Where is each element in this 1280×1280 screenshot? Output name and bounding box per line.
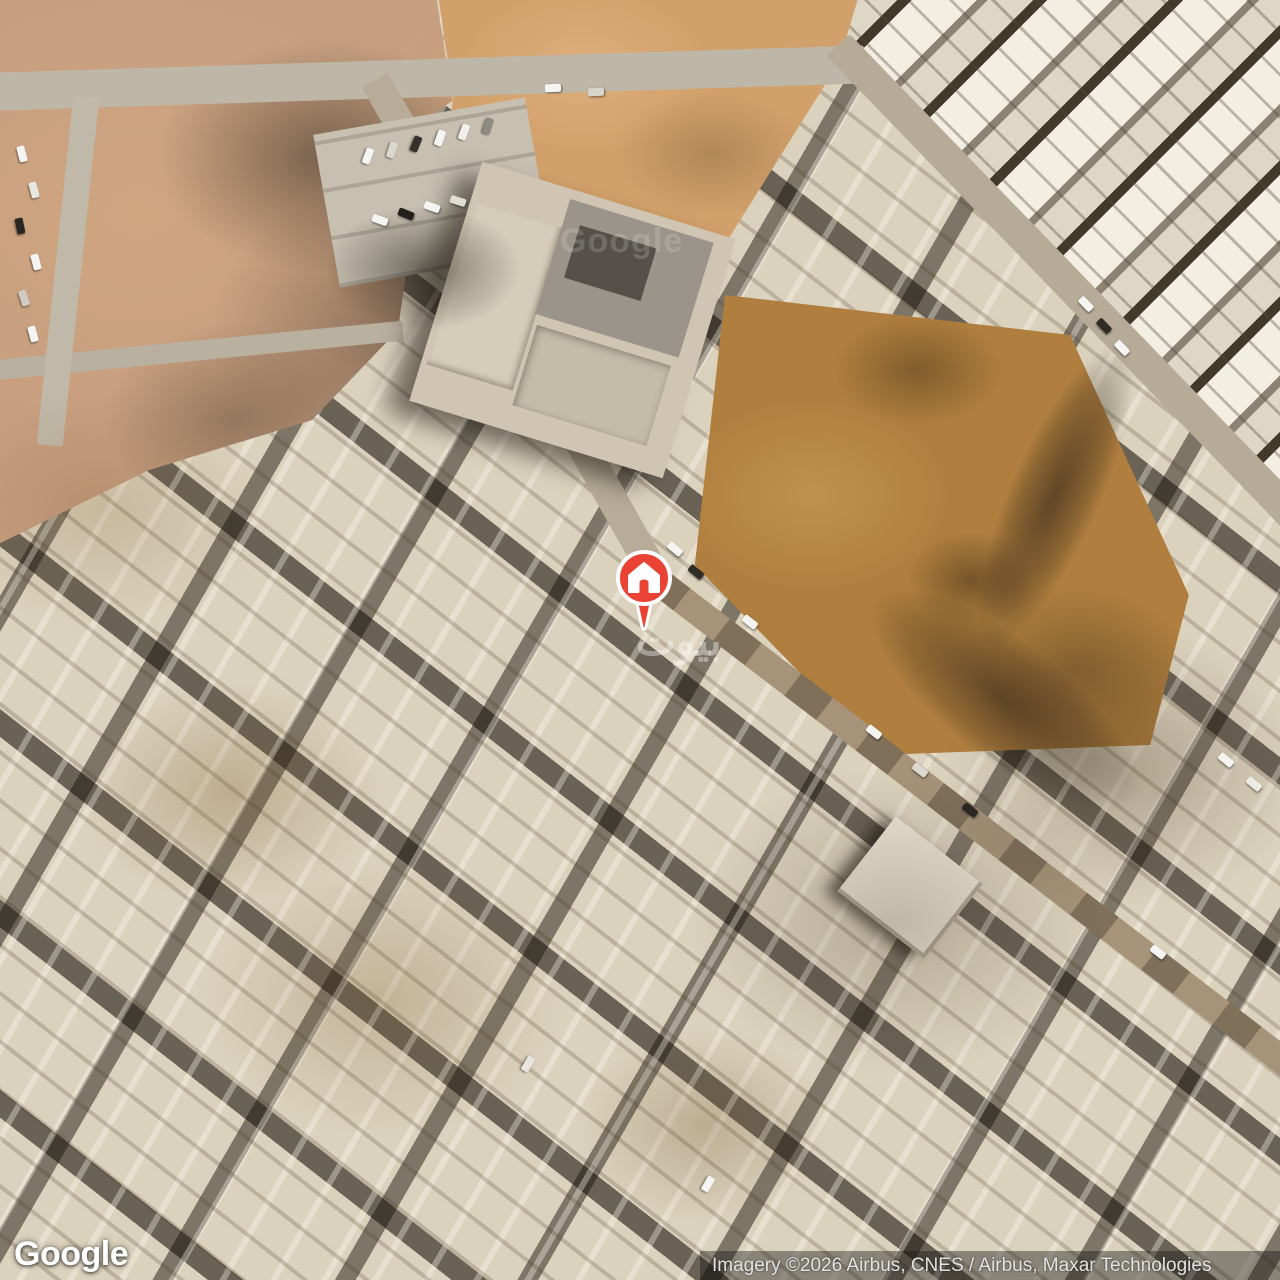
car (545, 84, 561, 93)
home-pin-marker[interactable] (612, 547, 676, 635)
car (588, 88, 604, 97)
attribution-text: Imagery ©2026 Airbus, CNES / Airbus, Max… (712, 1255, 1211, 1277)
home-pin-icon (612, 547, 676, 635)
car (1245, 776, 1262, 792)
map-viewport[interactable]: Google بيوت Google Imagery ©2026 Airbus,… (0, 0, 1280, 1280)
car (701, 1175, 716, 1193)
car (521, 1055, 536, 1073)
mosque-building (837, 816, 982, 959)
google-logo[interactable]: Google (14, 1235, 128, 1274)
attribution-bar: Imagery ©2026 Airbus, CNES / Airbus, Max… (700, 1251, 1280, 1280)
google-tile-watermark: Google (560, 222, 683, 261)
car (1217, 752, 1234, 768)
